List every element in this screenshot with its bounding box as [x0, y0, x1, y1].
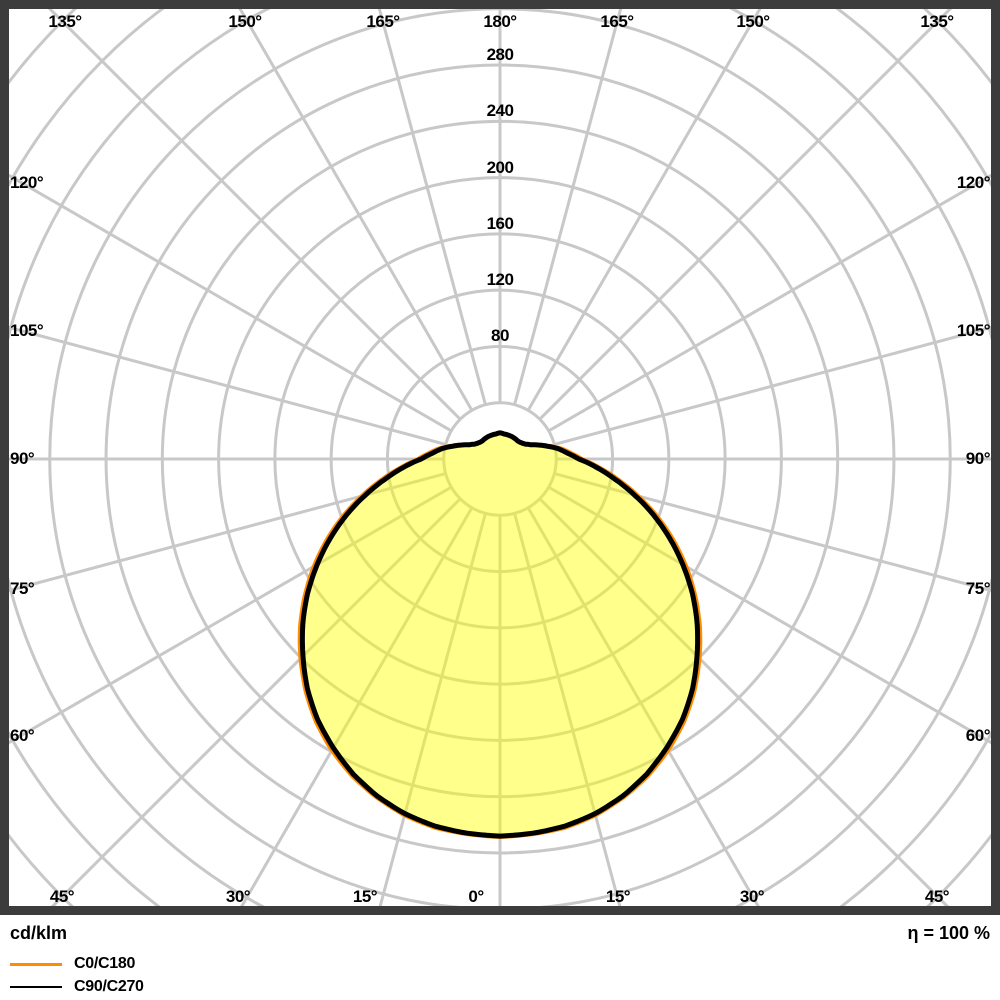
angle-label-20: 0° — [468, 887, 484, 906]
angle-label-7: 120° — [10, 173, 44, 192]
radial-tick-200: 200 — [487, 158, 514, 177]
efficiency-label: η = 100 % — [907, 923, 990, 944]
angle-label-13: 105° — [957, 321, 991, 340]
angle-label-0: 135° — [48, 12, 82, 31]
legend-line-swatch-black — [10, 986, 62, 988]
legend-line-swatch-orange — [10, 963, 62, 966]
angle-label-4: 165° — [600, 12, 634, 31]
angle-label-21: 15° — [606, 887, 631, 906]
angle-label-3: 180° — [483, 12, 517, 31]
legend-item-c0-c180: C0/C180 — [10, 955, 135, 973]
angle-label-14: 90° — [966, 449, 991, 468]
radial-tick-280: 280 — [487, 45, 514, 64]
polar-chart: 80120160200240280135°150°165°180°165°150… — [0, 0, 1000, 1000]
legend-label: C90/C270 — [74, 978, 144, 996]
angle-label-11: 60° — [10, 726, 35, 745]
radial-tick-160: 160 — [487, 214, 514, 233]
legend-label: C0/C180 — [74, 955, 135, 973]
radial-unit-label: cd/klm — [10, 923, 67, 944]
angle-label-16: 60° — [966, 726, 991, 745]
angle-label-10: 75° — [10, 579, 35, 598]
radial-tick-80: 80 — [491, 326, 509, 345]
angle-label-19: 15° — [353, 887, 378, 906]
angle-label-18: 30° — [226, 887, 251, 906]
angle-label-22: 30° — [740, 887, 765, 906]
angle-label-6: 135° — [920, 12, 954, 31]
polar-chart-svg: 80120160200240280135°150°165°180°165°150… — [0, 0, 1000, 1000]
angle-label-1: 150° — [228, 12, 262, 31]
photometric-diagram-page: 80120160200240280135°150°165°180°165°150… — [0, 0, 1000, 1000]
angle-label-5: 150° — [736, 12, 770, 31]
chart-footer: cd/klm η = 100 % C0/C180 C90/C270 — [0, 915, 1000, 1000]
angle-label-8: 105° — [10, 321, 44, 340]
legend-item-c90-c270: C90/C270 — [10, 978, 144, 996]
angle-label-2: 165° — [366, 12, 400, 31]
angle-label-23: 45° — [925, 887, 950, 906]
angle-label-9: 90° — [10, 449, 35, 468]
radial-tick-240: 240 — [487, 101, 514, 120]
radial-tick-120: 120 — [487, 270, 514, 289]
angle-label-15: 75° — [966, 579, 991, 598]
angle-label-17: 45° — [50, 887, 75, 906]
angle-label-12: 120° — [957, 173, 991, 192]
